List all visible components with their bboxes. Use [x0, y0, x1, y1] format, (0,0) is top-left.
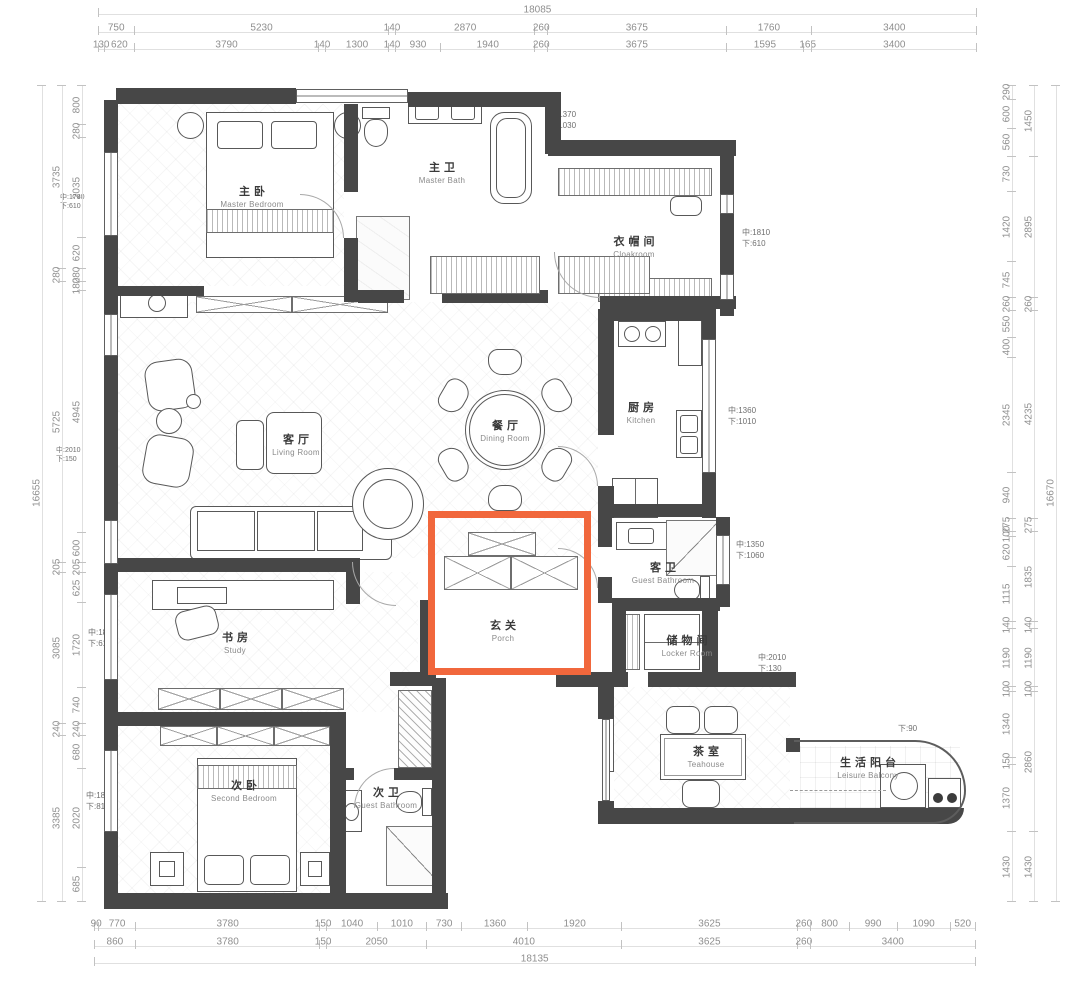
dim-label: 730	[1002, 166, 1013, 183]
dim-tick	[1007, 156, 1016, 157]
dim-label: 1920	[564, 919, 586, 930]
dim-tick	[1029, 156, 1038, 157]
dim-tick	[621, 922, 622, 931]
bedroom2-wardrobe	[160, 726, 217, 746]
size-annotation: 中:1350 下:1060	[736, 540, 764, 562]
room-label-living-room: 客厅Living Room	[272, 431, 320, 457]
wall-segment	[716, 517, 730, 535]
dim-tick	[77, 901, 86, 902]
dim-tick	[975, 957, 976, 966]
dim-label: 5230	[250, 23, 272, 34]
coffee-table-small	[236, 420, 264, 470]
dining-chair	[488, 349, 522, 375]
dim-tick	[976, 43, 977, 52]
dim-label: 685	[72, 876, 83, 893]
wall-segment	[408, 92, 548, 107]
hall-wardrobe	[430, 256, 540, 294]
window	[104, 152, 118, 236]
room-label-master-bedroom: 主卧Master Bedroom	[220, 183, 283, 209]
shower-master	[356, 216, 410, 300]
dim-label: 860	[107, 937, 124, 948]
dim-tick	[77, 290, 86, 291]
dim-tick	[1007, 536, 1016, 537]
dim-tick	[1007, 261, 1016, 262]
room-label-guest-bathroom: 客卫Guest Bathroom	[632, 559, 694, 585]
dim-label: 600	[72, 539, 83, 556]
window	[716, 535, 730, 585]
dim-tick	[94, 940, 95, 949]
sofa-cushion	[257, 511, 315, 551]
bedside-stool-left	[177, 112, 204, 139]
dim-line	[82, 85, 83, 901]
dim-label: 620	[1002, 543, 1013, 560]
tea-chair	[704, 706, 738, 734]
dim-label: 3400	[883, 40, 905, 51]
dim-tick	[1007, 99, 1016, 100]
window	[104, 520, 118, 564]
dim-label: 100	[1024, 681, 1035, 698]
pillow	[204, 855, 244, 885]
room-label-guest-bathroom-2: 次卫Guest Bathroom	[355, 784, 417, 810]
dim-label: 3400	[883, 23, 905, 34]
sink-basin	[680, 415, 698, 433]
dim-tick	[77, 85, 86, 86]
bathtub-inner	[496, 118, 526, 198]
dim-label: 1430	[1024, 856, 1035, 878]
gb-vanity	[616, 522, 668, 550]
burner	[645, 326, 661, 342]
dim-tick	[811, 26, 812, 35]
dim-label: 1430	[1002, 856, 1013, 878]
dim-tick	[77, 768, 86, 769]
dim-tick	[1051, 901, 1060, 902]
dim-label: 3625	[698, 937, 720, 948]
dim-label: 2895	[1024, 216, 1035, 238]
dim-label: 3780	[217, 919, 239, 930]
dim-label: 990	[865, 919, 882, 930]
dim-label: 3735	[52, 165, 63, 187]
wall-segment	[720, 214, 734, 274]
dim-tick	[1007, 691, 1016, 692]
wall-segment	[648, 672, 796, 687]
dim-tick	[811, 43, 812, 52]
dim-label: 800	[821, 919, 838, 930]
dim-tick	[377, 922, 378, 931]
dim-tick	[1007, 357, 1016, 358]
wall-segment	[598, 504, 704, 517]
dim-tick	[326, 922, 327, 931]
dim-label: 3625	[698, 919, 720, 930]
room-label-cloakroom: 衣帽间Cloakroom	[610, 233, 659, 259]
lounge-chair	[352, 468, 424, 540]
burner	[624, 326, 640, 342]
wall-segment	[720, 156, 734, 194]
dim-tick	[57, 572, 66, 573]
dim-label: 180	[72, 278, 83, 295]
dim-label: 5725	[52, 411, 63, 433]
dim-tick	[57, 85, 66, 86]
dim-label: 150	[1002, 753, 1013, 770]
dim-tick	[77, 687, 86, 688]
dim-label: 2345	[1002, 404, 1013, 426]
dim-label: 2020	[72, 807, 83, 829]
dim-tick	[1007, 472, 1016, 473]
dim-label: 3400	[882, 937, 904, 948]
dim-tick	[1029, 85, 1038, 86]
dim-tick	[77, 572, 86, 573]
dim-label: 560	[1002, 134, 1013, 151]
dim-label: 1720	[72, 634, 83, 656]
sofa-cushion	[197, 511, 255, 551]
stove	[618, 321, 666, 347]
pillow	[250, 855, 290, 885]
dim-line	[1034, 85, 1035, 902]
dim-label: 4235	[1024, 403, 1035, 425]
wardrobe-top	[558, 168, 712, 196]
wall-segment	[118, 558, 346, 572]
wall-segment	[600, 296, 736, 309]
dim-tick	[426, 940, 427, 949]
dim-label: 1940	[477, 40, 499, 51]
nightstand-inner	[308, 861, 322, 877]
dim-tick	[104, 43, 105, 52]
window	[720, 274, 734, 300]
sink-basin	[680, 436, 698, 454]
dim-tick	[1007, 764, 1016, 765]
dim-label: 205	[72, 559, 83, 576]
dim-label: 3790	[215, 40, 237, 51]
dim-label: 2870	[454, 23, 476, 34]
dim-tick	[976, 26, 977, 35]
dim-tick	[726, 26, 727, 35]
room-label-study: 书房Study	[218, 629, 252, 655]
dim-tick	[461, 922, 462, 931]
dim-label: 1370	[1002, 787, 1013, 809]
dim-label: 1010	[391, 919, 413, 930]
wall-segment	[116, 88, 296, 104]
dim-label: 3085	[52, 637, 63, 659]
dim-tick	[1051, 85, 1060, 86]
dim-label: 1420	[1002, 215, 1013, 237]
dim-tick	[77, 532, 86, 533]
dim-tick	[950, 922, 951, 931]
dim-tick	[547, 43, 548, 52]
porch-highlight-box	[428, 511, 591, 675]
dim-tick	[1029, 310, 1038, 311]
study-desk	[152, 580, 334, 610]
window	[720, 194, 734, 214]
dim-tick	[1029, 831, 1038, 832]
dim-label: 600	[1002, 106, 1013, 123]
wall-segment	[702, 473, 716, 518]
dim-label: 140	[1002, 617, 1013, 634]
dim-label: 1115	[1002, 584, 1013, 605]
bathtub	[490, 112, 532, 204]
wall-segment	[104, 564, 118, 594]
dim-tick	[1007, 831, 1016, 832]
tv-console	[196, 296, 292, 313]
dim-tick	[37, 901, 46, 902]
side-table-small	[186, 394, 201, 409]
dim-tick	[77, 602, 86, 603]
study-bookcase	[220, 688, 282, 710]
pillow	[217, 121, 263, 149]
dim-label: 3780	[217, 937, 239, 948]
dim-tick	[77, 735, 86, 736]
wall-segment	[612, 611, 626, 673]
dim-label: 2050	[365, 937, 387, 948]
wall-segment	[344, 104, 358, 192]
dim-label: 550	[1002, 316, 1013, 333]
dim-tick	[135, 922, 136, 931]
dim-label: 680	[72, 744, 83, 761]
side-table	[156, 408, 182, 434]
dim-label: 205	[52, 559, 63, 576]
dim-label: 1190	[1002, 647, 1013, 669]
window	[104, 594, 118, 680]
dim-label: 730	[436, 919, 453, 930]
dim-line	[62, 85, 63, 901]
room-label-kitchen: 厨房Kitchen	[624, 399, 658, 425]
wall-segment	[598, 517, 612, 547]
dim-tick	[135, 940, 136, 949]
room-label-teahouse: 茶室Teahouse	[687, 743, 724, 769]
dim-label: 90	[91, 919, 102, 930]
dim-label: 18135	[521, 954, 549, 965]
dim-label: 130	[93, 40, 110, 51]
size-annotation: 中:1810 下:610	[742, 228, 770, 250]
dim-label: 1360	[484, 919, 506, 930]
nightstand	[150, 852, 184, 886]
cloakroom-stool	[670, 196, 702, 216]
dim-label: 400	[1002, 339, 1013, 356]
dim-tick	[57, 281, 66, 282]
room-label-leisure-balcony: 生活阳台Leisure Balcony	[836, 754, 900, 780]
dim-label: 625	[72, 579, 83, 596]
dim-label: 3675	[626, 23, 648, 34]
window	[104, 314, 118, 356]
ac-shaft	[398, 690, 432, 768]
dim-label: 165	[799, 40, 816, 51]
bedroom2-wardrobe	[217, 726, 274, 746]
size-annotation: 中:1360 下:1010	[728, 406, 756, 428]
size-annotation: 中:2010 下:150	[56, 446, 81, 465]
wall-segment	[116, 286, 204, 296]
dim-label: 4945	[72, 401, 83, 423]
wc2-toilet-tank	[422, 788, 432, 816]
dim-tick	[325, 43, 326, 52]
dim-tick	[98, 8, 99, 17]
dim-tick	[726, 43, 727, 52]
dim-label: 150	[315, 937, 332, 948]
threshold-dashed-line	[790, 790, 886, 791]
dim-label: 1090	[912, 919, 934, 930]
wall-segment	[614, 309, 702, 321]
dim-label: 2035	[72, 177, 83, 199]
dim-label: 150	[315, 919, 332, 930]
dim-tick	[395, 43, 396, 52]
wall-segment	[330, 712, 346, 896]
dim-tick	[1029, 901, 1038, 902]
dim-tick	[98, 922, 99, 931]
dim-tick	[849, 922, 850, 931]
bedroom2-wardrobe	[274, 726, 330, 746]
tea-chair	[682, 780, 720, 808]
dim-label: 16655	[32, 479, 43, 507]
dim-label: 3385	[52, 807, 63, 829]
study-bookcase	[282, 688, 344, 710]
dim-label: 140	[1024, 617, 1035, 634]
dim-label: 620	[111, 40, 128, 51]
nightstand-inner	[159, 861, 175, 877]
wall-segment	[612, 672, 628, 687]
dim-label: 3675	[626, 40, 648, 51]
dim-tick	[77, 137, 86, 138]
dim-tick	[621, 940, 622, 949]
dim-tick	[134, 43, 135, 52]
dim-label: 16670	[1046, 480, 1057, 508]
dim-tick	[98, 26, 99, 35]
wall-segment	[104, 356, 118, 520]
laptop	[177, 587, 227, 604]
pantry-sink	[148, 294, 166, 312]
dim-tick	[1007, 628, 1016, 629]
dim-tick	[395, 26, 396, 35]
wall-segment	[104, 100, 118, 152]
dim-tick	[1007, 901, 1016, 902]
dim-label: 140	[384, 23, 401, 34]
dim-label: 140	[384, 40, 401, 51]
toilet-master	[362, 107, 390, 119]
balcony-glass-wall	[794, 740, 966, 824]
dining-chair	[488, 485, 522, 511]
wall-segment	[104, 302, 118, 314]
dim-tick	[975, 940, 976, 949]
dim-label: 940	[1002, 487, 1013, 504]
dim-label: 1300	[346, 40, 368, 51]
dim-tick	[897, 922, 898, 931]
wall-segment	[548, 140, 736, 156]
dim-tick	[1007, 566, 1016, 567]
wall-segment	[432, 678, 446, 895]
dim-tick	[1007, 128, 1016, 129]
dim-tick	[440, 43, 441, 52]
dim-tick	[77, 867, 86, 868]
room-label-master-bath: 主卫Master Bath	[419, 159, 465, 185]
kitchen-sink	[676, 410, 702, 458]
room-label-locker-room: 储物间Locker Room	[662, 632, 713, 658]
armchair	[140, 432, 196, 490]
wall-segment	[104, 680, 118, 714]
window	[702, 339, 716, 473]
dim-label: 620	[72, 244, 83, 261]
study-bookcase	[158, 688, 220, 710]
size-annotation: 下:90	[898, 724, 917, 735]
wall-segment	[104, 714, 118, 750]
dim-label: 2860	[1024, 751, 1035, 773]
window	[602, 719, 610, 801]
wall-segment	[104, 893, 448, 909]
dim-label: 520	[954, 919, 971, 930]
dim-label: 800	[72, 96, 83, 113]
dim-tick	[547, 26, 548, 35]
dim-tick	[94, 957, 95, 966]
dim-label: 1760	[758, 23, 780, 34]
dim-label: 140	[314, 40, 331, 51]
dim-label: 740	[72, 697, 83, 714]
dim-tick	[1007, 191, 1016, 192]
dim-label: 930	[410, 40, 427, 51]
dim-tick	[134, 26, 135, 35]
dim-label: 1340	[1002, 713, 1013, 735]
dim-label: 1595	[754, 40, 776, 51]
wall-segment	[702, 309, 716, 339]
dim-tick	[1029, 531, 1038, 532]
lounge-chair-seat	[363, 479, 413, 529]
dim-label: 4010	[513, 937, 535, 948]
wall-segment	[598, 577, 612, 603]
dim-label: 1835	[1024, 565, 1035, 587]
wall-segment	[598, 687, 614, 719]
dim-tick	[77, 237, 86, 238]
dim-tick	[1029, 628, 1038, 629]
dim-label: 750	[108, 23, 125, 34]
dim-label: 18085	[524, 5, 552, 16]
dim-tick	[57, 901, 66, 902]
dim-tick	[37, 85, 46, 86]
dim-label: 1190	[1024, 647, 1035, 669]
floor-plan-canvas: 主卧Master Bedroom 主卫Master Bath 衣帽间Cloakr…	[0, 0, 1080, 984]
wall-segment	[358, 290, 404, 303]
dim-tick	[1007, 310, 1016, 311]
tea-chair	[666, 706, 700, 734]
room-label-second-bedroom: 次卧Second Bedroom	[211, 777, 277, 803]
window	[296, 89, 408, 103]
dim-label: 1040	[341, 919, 363, 930]
room-label-dining-room: 餐厅Dining Room	[480, 417, 530, 443]
window	[104, 750, 118, 832]
dim-label: 770	[109, 919, 126, 930]
wall-segment	[336, 768, 354, 780]
dim-tick	[1029, 691, 1038, 692]
dim-tick	[976, 8, 977, 17]
sink-basin	[628, 528, 654, 544]
wall-segment	[344, 238, 358, 302]
dim-tick	[426, 922, 427, 931]
nightstand	[300, 852, 330, 886]
dim-tick	[810, 922, 811, 931]
dim-tick	[326, 940, 327, 949]
dim-tick	[810, 940, 811, 949]
dim-tick	[57, 735, 66, 736]
toilet-master-bowl	[364, 119, 388, 147]
wall-segment	[598, 309, 614, 435]
dim-label: 1450	[1024, 109, 1035, 131]
wall-segment	[104, 832, 118, 895]
dim-tick	[527, 922, 528, 931]
dim-label: 745	[1002, 271, 1013, 288]
dim-label: 100	[1002, 681, 1013, 698]
pillow	[271, 121, 317, 149]
dim-label: 100	[1002, 526, 1013, 543]
wall-segment	[118, 712, 332, 726]
dim-tick	[975, 922, 976, 931]
